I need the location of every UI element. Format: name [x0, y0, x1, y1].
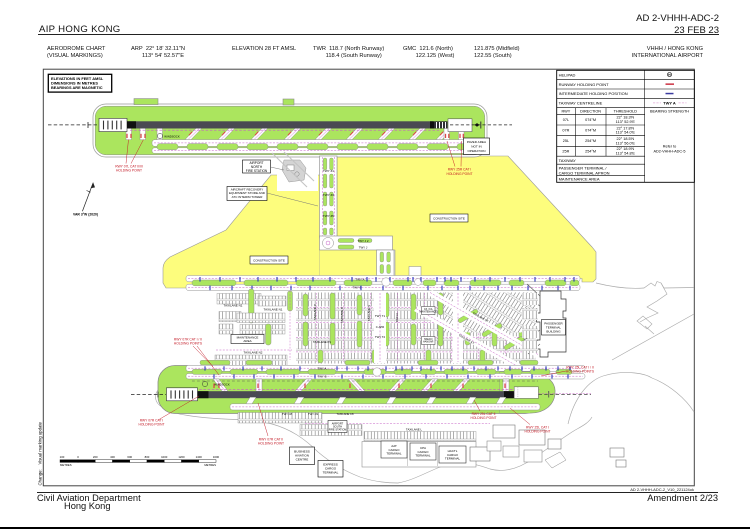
svg-text:TAXILANE P: TAXILANE P	[313, 304, 317, 320]
svg-text:TWY C9: TWY C9	[308, 412, 319, 416]
svg-text:BEARINGS ARE MAGNETIC: BEARINGS ARE MAGNETIC	[51, 85, 103, 90]
svg-text:1200: 1200	[178, 455, 185, 459]
svg-text:TWY B: TWY B	[317, 375, 326, 379]
svg-text:RWY: RWY	[562, 109, 571, 113]
svg-text:AD2-VHHH-ADC-5: AD2-VHHH-ADC-5	[653, 149, 685, 153]
svg-text:200: 200	[93, 455, 98, 459]
svg-text:TERMINAL: TERMINAL	[386, 452, 402, 456]
svg-text:07R: 07R	[562, 129, 569, 133]
svg-text:TAXILANE L: TAXILANE L	[406, 428, 423, 432]
svg-text:TWY A: TWY A	[318, 367, 327, 371]
svg-text:22° 18.3'N: 22° 18.3'N	[616, 116, 634, 120]
svg-text:ATC INTERIM TOWER: ATC INTERIM TOWER	[232, 195, 264, 199]
svg-text:CENTRE: CENTRE	[296, 458, 309, 462]
svg-text:TWY Z5: TWY Z5	[323, 214, 334, 218]
svg-text:HOLDING POINT: HOLDING POINT	[116, 169, 142, 173]
svg-text:25R: 25R	[562, 149, 569, 153]
svg-text:TWY T1: TWY T1	[375, 314, 386, 318]
svg-text:INTERMEDIATE HOLDING POSITION: INTERMEDIATE HOLDING POSITION	[559, 91, 628, 96]
svg-text:C APR: C APR	[376, 325, 384, 329]
svg-text:400: 400	[110, 455, 115, 459]
svg-text:RUNWAY HOLDING POINT: RUNWAY HOLDING POINT	[559, 82, 609, 87]
svg-text:WINDSOCK: WINDSOCK	[214, 383, 230, 387]
svg-text:HOLDING POINT: HOLDING POINT	[258, 442, 284, 446]
svg-text:22° 18.9'N: 22° 18.9'N	[616, 147, 634, 151]
svg-text:TWY Z3: TWY Z3	[323, 193, 334, 197]
svg-text:Change:: Change:	[38, 469, 43, 485]
svg-text:074°M: 074°M	[585, 118, 596, 122]
svg-text:TWY A: TWY A	[356, 277, 365, 281]
svg-text:113° 54.8'E: 113° 54.8'E	[616, 152, 636, 156]
svg-text:25L: 25L	[563, 139, 569, 143]
svg-text:113° 54.0'E: 113° 54.0'E	[616, 131, 636, 135]
svg-text:TAXILANE N1: TAXILANE N1	[224, 304, 243, 308]
svg-text:FIRE STATION: FIRE STATION	[329, 427, 347, 431]
svg-text:TAXILANE R: TAXILANE R	[340, 307, 344, 323]
svg-text:FIRE STATION: FIRE STATION	[246, 169, 268, 173]
svg-text:HOLDING POINT: HOLDING POINT	[524, 430, 550, 434]
svg-text:TWY N: TWY N	[395, 314, 399, 323]
svg-text:TAXILANE P1: TAXILANE P1	[313, 340, 331, 344]
svg-text:100: 100	[60, 455, 65, 459]
svg-text:Refer to: Refer to	[663, 145, 677, 149]
svg-text:CARGO TERMINAL APRON: CARGO TERMINAL APRON	[559, 170, 610, 175]
svg-text:BUILDING: BUILDING	[546, 330, 561, 334]
svg-text:CONSTRUCTION SITE: CONSTRUCTION SITE	[253, 258, 285, 262]
svg-text:OPERATION: OPERATION	[468, 149, 486, 153]
svg-text:TAXILANE N2: TAXILANE N2	[244, 351, 263, 355]
svg-text:TERMINAL: TERMINAL	[415, 454, 431, 458]
svg-text:TAXIWAY CENTRELINE: TAXIWAY CENTRELINE	[559, 101, 603, 106]
svg-text:METRES: METRES	[60, 463, 72, 467]
svg-text:113° 52.9'E: 113° 52.9'E	[616, 120, 636, 124]
svg-text:WINDSOCK: WINDSOCK	[164, 135, 180, 139]
svg-text:TWY A: TWY A	[663, 100, 676, 105]
svg-text:MAINTENANCE AREA: MAINTENANCE AREA	[559, 177, 600, 182]
svg-text:METRES: METRES	[204, 463, 216, 467]
svg-text:TWY Z1: TWY Z1	[323, 169, 334, 173]
svg-text:HANGAR: HANGAR	[423, 341, 434, 344]
svg-text:07L: 07L	[563, 118, 569, 122]
svg-text:HOLDING POINTS: HOLDING POINTS	[174, 342, 203, 346]
svg-text:Visual marking update: Visual marking update	[38, 421, 43, 464]
svg-text:TAXILANE S: TAXILANE S	[367, 305, 371, 321]
svg-text:CONSTRUCTION SITE: CONSTRUCTION SITE	[433, 216, 465, 220]
svg-text:0: 0	[77, 455, 79, 459]
svg-text:TWY T2: TWY T2	[375, 335, 386, 339]
svg-text:1400: 1400	[196, 455, 203, 459]
svg-text:1000: 1000	[161, 455, 168, 459]
svg-text:254°M: 254°M	[585, 149, 596, 153]
svg-text:BEARING STRENGTH: BEARING STRENGTH	[650, 109, 689, 113]
svg-text:HOLDING POINT: HOLDING POINT	[470, 416, 496, 420]
svg-text:TAXIWAY: TAXIWAY	[559, 158, 577, 163]
svg-text:HOLDING POINT: HOLDING POINT	[446, 172, 472, 176]
svg-text:TWY J: TWY J	[359, 246, 368, 250]
svg-text:600: 600	[127, 455, 132, 459]
svg-text:MAINTENANCE: MAINTENANCE	[419, 311, 437, 314]
svg-text:TERMINAL: TERMINAL	[445, 457, 461, 461]
svg-text:NOT IN: NOT IN	[471, 145, 481, 149]
svg-text:TERMINAL: TERMINAL	[323, 471, 339, 475]
svg-text:22° 18.5'N: 22° 18.5'N	[616, 137, 634, 141]
svg-text:TAXILANE C8: TAXILANE C8	[337, 412, 354, 416]
svg-text:VAR 3°W (2020): VAR 3°W (2020)	[73, 212, 98, 216]
svg-text:TWY C8: TWY C8	[282, 412, 293, 416]
svg-text:AREA: AREA	[243, 339, 251, 343]
svg-text:074°M: 074°M	[585, 129, 596, 133]
svg-text:DIRECTION: DIRECTION	[580, 109, 601, 113]
svg-text:22° 17.8'N: 22° 17.8'N	[616, 126, 634, 130]
svg-text:HOLDING POINT: HOLDING POINT	[138, 423, 164, 427]
svg-text:THRESHOLD: THRESHOLD	[614, 109, 638, 113]
svg-text:254°M: 254°M	[585, 139, 596, 143]
svg-text:1600: 1600	[213, 455, 220, 459]
svg-text:HOLDING POINTS: HOLDING POINTS	[566, 370, 595, 374]
svg-text:TWY J 2: TWY J 2	[357, 239, 368, 243]
svg-text:HELIPAD: HELIPAD	[559, 73, 576, 78]
svg-text:800: 800	[145, 455, 150, 459]
svg-text:TWY B: TWY B	[352, 285, 361, 289]
svg-text:TAXILANE N1: TAXILANE N1	[264, 307, 283, 311]
svg-text:113° 56.0'E: 113° 56.0'E	[616, 141, 636, 145]
svg-text:PAVED AREA: PAVED AREA	[467, 140, 487, 144]
